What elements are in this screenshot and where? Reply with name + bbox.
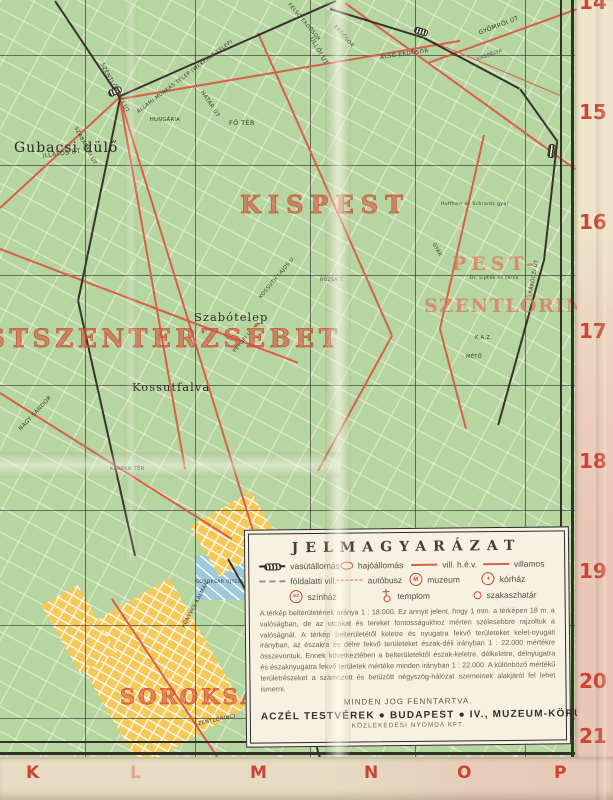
legend-box: JELMAGYARÁZAT vasútállomáshajóállomásvil… [244,526,571,747]
grid-column-letter: M [250,763,267,783]
grid-row-number: 16 [579,210,607,234]
theater-icon: SZ [290,590,303,603]
legend-item-label: templom [397,590,430,600]
legend-item-label: hajóállomás [358,560,403,570]
district-label: PESTSZENTERZSÉBET [0,324,342,353]
legend-item-label: kórház [500,573,526,583]
legend-item-label: vill. h.é.v. [442,559,477,569]
legend-item: vasútállomás [259,561,340,572]
legend-row: vasútállomáshajóállomásvill. h.é.v.villa… [259,558,554,571]
bus-line-icon [337,579,363,580]
underground-line-icon [259,580,285,582]
legend-row: földalatti vill.autóbuszMmuzeum+kórház [259,571,554,587]
hospital-icon: + [482,572,495,585]
legend-item-label: villamos [514,559,545,569]
hev-line-icon [411,563,437,566]
legend-description: A térkép belterületének aránya 1 : 18.00… [260,605,556,694]
legend-inner-frame: JELMAGYARÁZAT vasútállomáshajóállomásvil… [248,530,567,743]
right-margin: 1415161718192021 [575,0,613,757]
district-label: PEST- [452,253,538,275]
legend-item: vill. h.é.v. [411,559,483,570]
district-label: SZENTLŐRINC [424,295,577,317]
map-frame-line [0,752,575,755]
rights-notice: MINDEN JOG FENNTARTVA. [261,696,556,708]
legend-item: +kórház [482,571,555,585]
map-frame-line [571,0,574,757]
grid-column-letter: K [26,763,39,783]
grid-row-number: 14 [579,0,607,14]
grid-row-number: 21 [579,724,607,748]
railway-station-icon [259,562,285,570]
legend-item: hajóállomás [340,560,412,571]
legend-item: szakaszhatár [473,588,536,602]
grid-column-letter: N [364,763,378,783]
legend-item: földalatti vill. [259,574,336,588]
bottom-margin: KLMNOP [0,757,613,800]
boat-station-icon [340,562,353,570]
legend-item-label: színház [308,591,337,601]
legend-item-label: autóbusz [368,575,403,585]
church-icon [380,589,392,602]
map-canvas: ILLATOS ÚTSZENTLŐRINCI ÚTÁLLAMI MUNKÁS T… [0,0,577,757]
grid-row-number: 19 [579,559,607,583]
district-label: KISPEST [240,190,410,219]
photographed-paper-map: ILLATOS ÚTSZENTLŐRINCI ÚTÁLLAMI MUNKÁS T… [0,0,613,800]
grid-column-letter: O [457,763,471,783]
grid-column-letter: L [130,763,141,783]
place-label: Gubacsi dülő [14,140,118,156]
legend-item: SZszínház [290,590,337,603]
legend-item: autóbusz [337,573,410,587]
legend-title: JELMAGYARÁZAT [259,537,554,556]
grid-row-number: 20 [579,669,607,693]
grid-column-letter: P [554,763,566,783]
legend-item-label: szakaszhatár [486,589,536,600]
legend-item-label: vasútállomás [290,561,340,572]
legend-item: villamos [483,558,555,569]
museum-icon: M [409,573,422,586]
section-boundary-icon [473,591,481,599]
legend-item-label: földalatti vill. [290,575,336,585]
grid-row-number: 15 [579,100,607,124]
legend-item: Mmuzeum [409,572,482,586]
legend-item-label: muzeum [427,574,460,584]
grid-row-number: 18 [579,449,607,473]
tram-line-icon [483,563,509,564]
legend-row: SZszínháztemplomszakaszhatár [260,587,555,603]
place-label: Szabótelep [194,310,268,324]
legend-item: templom [380,589,430,603]
legend-items: vasútállomáshajóállomásvill. h.é.v.villa… [259,558,554,606]
place-label: Kossutfalva [132,380,210,394]
grid-row-number: 17 [579,319,607,343]
